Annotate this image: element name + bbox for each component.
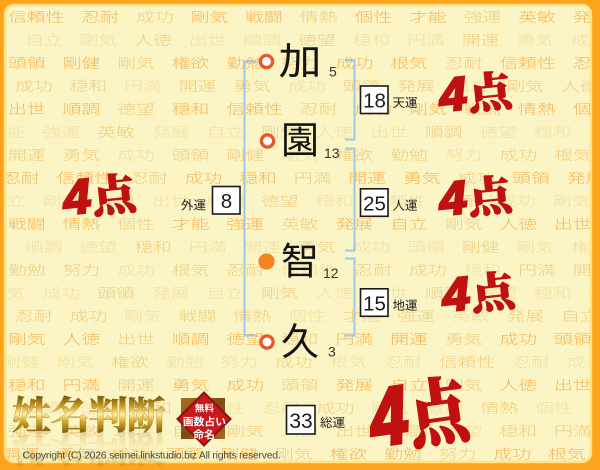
- svg-text:3: 3: [328, 344, 336, 360]
- svg-text:12: 12: [323, 265, 339, 281]
- svg-text:33: 33: [289, 410, 312, 433]
- svg-text:15: 15: [363, 292, 386, 315]
- svg-text:18: 18: [363, 90, 386, 113]
- svg-text:25: 25: [363, 192, 386, 215]
- svg-text:Copyright (C) 2026 seimei.link: Copyright (C) 2026 seimei.linkstudio.biz…: [23, 451, 281, 462]
- svg-text:5: 5: [329, 64, 337, 80]
- svg-text:8: 8: [221, 190, 232, 213]
- svg-text:13: 13: [324, 145, 340, 161]
